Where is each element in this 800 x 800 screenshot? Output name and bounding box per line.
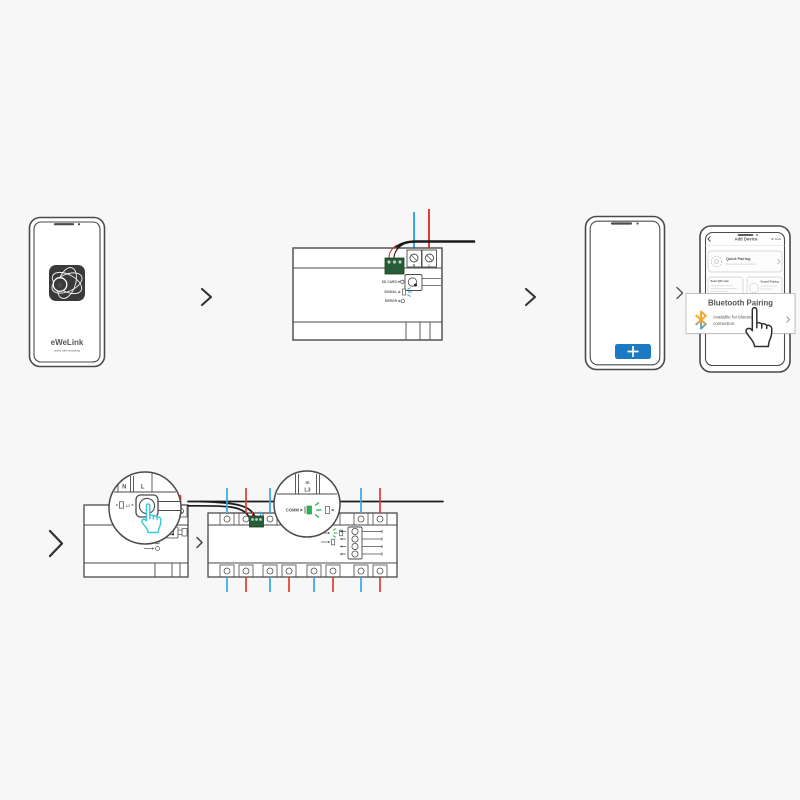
- comm-indicator-callout: In L3 COMM: [274, 471, 340, 537]
- callout-terminal-l: L: [141, 485, 145, 491]
- svg-text:SIGNAL: SIGNAL: [384, 290, 397, 294]
- sound-pairing-label: Sound Pairing: [761, 280, 780, 284]
- phone-ewelink-app: e eWeLink works with everything: [28, 216, 106, 368]
- phone-bluetooth-pairing: Add Device AP Mode Quick Pairing Scan QR…: [680, 218, 800, 386]
- svg-text:SD CARD: SD CARD: [382, 280, 398, 284]
- l1-label: L1: [126, 504, 130, 508]
- step-arrow-small-icon: [197, 538, 202, 548]
- header-title: Add Device: [735, 236, 758, 241]
- pairing-button-callout: N L L1: [109, 472, 181, 544]
- comm-label: COMM: [286, 508, 300, 513]
- app-tagline: works with everything: [54, 349, 80, 353]
- step-arrow-icon: [523, 286, 539, 308]
- popup-title: Bluetooth Pairing: [708, 299, 773, 308]
- terminal-l-label: L: [428, 264, 430, 268]
- popup-line2: connection.: [713, 321, 735, 326]
- callout-terminal-l3: L3: [304, 488, 310, 494]
- phone-screen: [590, 221, 660, 365]
- quick-pairing-card: Quick Pairing: [708, 251, 782, 272]
- phone-add-device: [584, 215, 666, 371]
- callout-terminal-n: N: [122, 485, 126, 491]
- app-letter: e: [58, 280, 63, 290]
- step-arrow-icon: [199, 286, 215, 308]
- step-arrow-icon: [50, 531, 62, 556]
- header-action: AP Mode: [771, 237, 782, 241]
- phone-camera-dot: [78, 223, 80, 225]
- wiring-pairing-diagram: N L L1: [40, 450, 470, 610]
- green-led: [307, 506, 312, 514]
- phone-camera-dot: [636, 222, 638, 224]
- plus-button: [615, 344, 651, 359]
- callout-terminal-in: In: [305, 480, 309, 485]
- ewelink-app-icon: e: [49, 265, 85, 301]
- quick-pairing-label: Quick Pairing: [726, 257, 751, 261]
- setup-instruction-diagram: e eWeLink works with everything: [0, 0, 800, 800]
- popup-line1: Available for bluetooth: [713, 315, 757, 320]
- svg-text:ERROR: ERROR: [385, 299, 398, 303]
- app-name: eWeLink: [51, 338, 84, 347]
- spm-main-device-wired: N L SD CARD SIGNAL: [278, 204, 478, 346]
- scan-qr-label: Scan QR code: [711, 279, 730, 283]
